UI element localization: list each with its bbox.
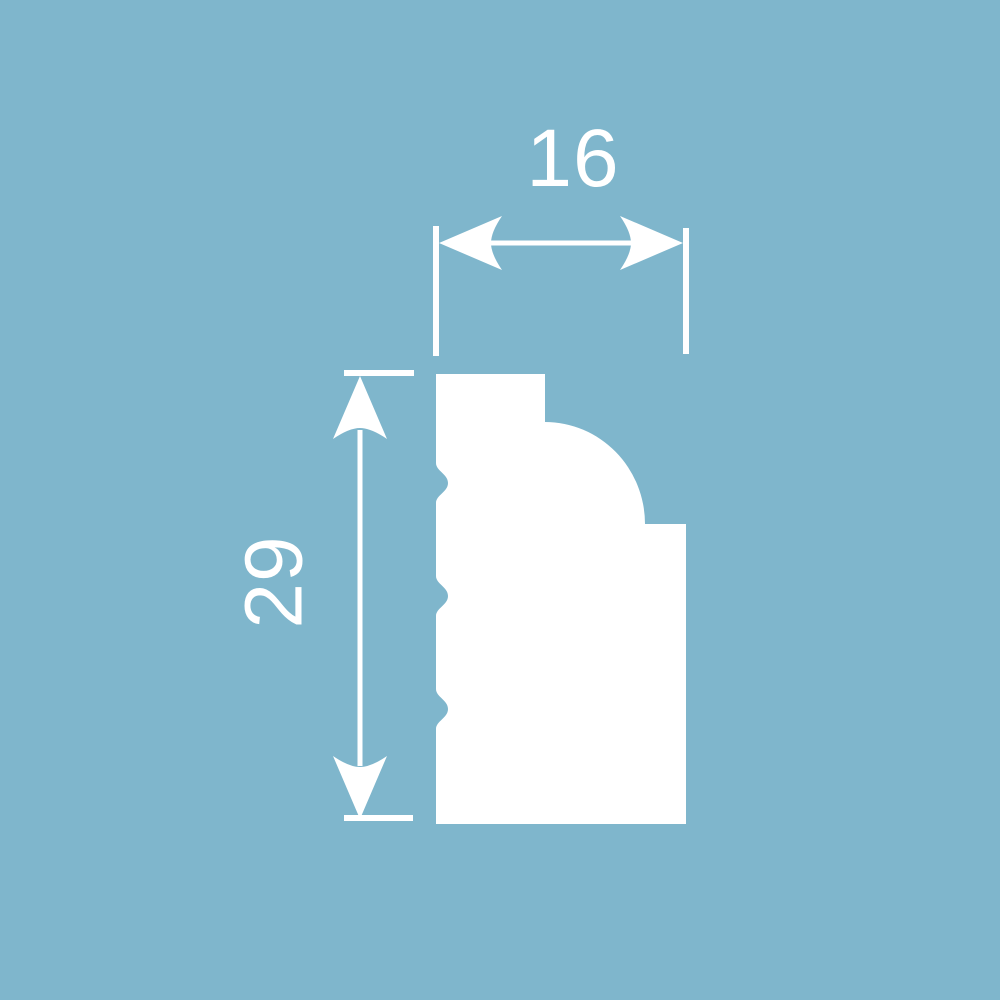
width-dimension: 16 <box>436 113 686 356</box>
width-dimension-label: 16 <box>526 113 619 204</box>
height-dimension-label: 29 <box>229 535 320 628</box>
arrowhead-up-icon <box>333 376 387 439</box>
moulding-profile-drawing: 16 29 <box>0 0 1000 1000</box>
moulding-profile-shape <box>436 374 686 824</box>
drawing-canvas: 16 29 <box>0 0 1000 1000</box>
height-dimension: 29 <box>229 373 414 819</box>
